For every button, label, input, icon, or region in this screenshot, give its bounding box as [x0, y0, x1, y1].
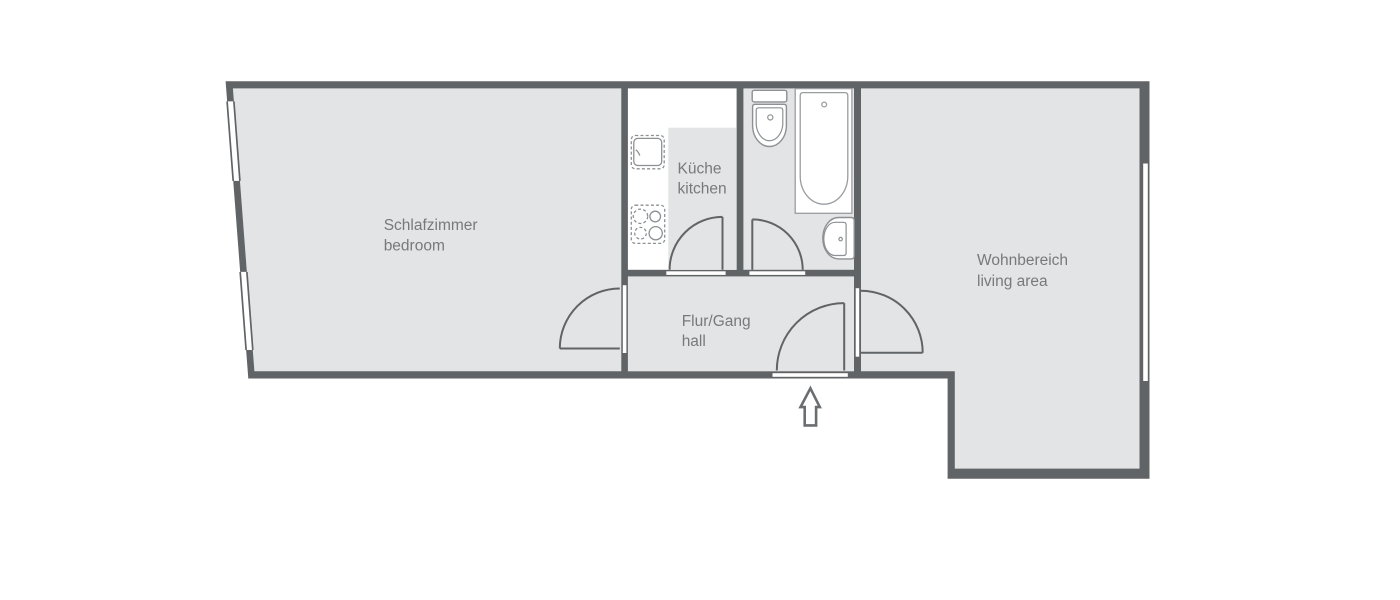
- svg-text:bedroom: bedroom: [384, 237, 445, 254]
- svg-text:living area: living area: [977, 273, 1048, 290]
- svg-text:kitchen: kitchen: [678, 180, 727, 197]
- svg-text:hall: hall: [682, 333, 706, 350]
- svg-text:Schlafzimmer: Schlafzimmer: [384, 217, 478, 234]
- svg-text:Wohnbereich: Wohnbereich: [977, 252, 1068, 269]
- svg-text:Flur/Gang: Flur/Gang: [682, 313, 751, 330]
- svg-text:Küche: Küche: [678, 160, 722, 177]
